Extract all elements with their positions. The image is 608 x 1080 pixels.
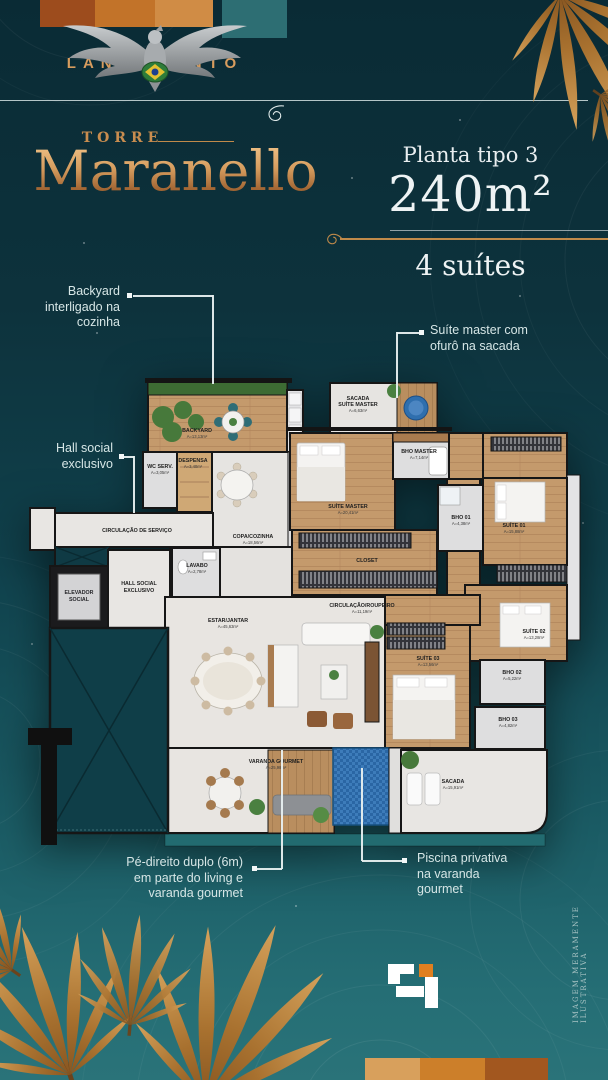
- eagle-logo-icon: [55, 6, 255, 106]
- svg-text:A=7,14m²: A=7,14m²: [410, 455, 429, 460]
- room-label-elevador: ELEVADOR: [64, 590, 93, 596]
- svg-text:A=45,63m²: A=45,63m²: [218, 624, 239, 629]
- callout-connector: [362, 860, 402, 862]
- svg-text:A=13,56m²: A=13,56m²: [418, 662, 439, 667]
- room-label-circ-servico: CIRCULAÇÃO DE SERVIÇO: [102, 527, 172, 534]
- callout-connector: [133, 295, 213, 297]
- svg-text:A=11,19m²: A=11,19m²: [352, 609, 373, 614]
- callout-bullet: [419, 330, 424, 335]
- svg-text:A=3,40m²: A=3,40m²: [184, 464, 203, 469]
- callout-bullet: [252, 866, 257, 871]
- room-label-circ-roupeiro: CIRCULAÇÃO/ROUPEIRO: [329, 602, 394, 609]
- svg-text:EXCLUSIVO: EXCLUSIVO: [124, 588, 155, 594]
- svg-text:A=15,91m²: A=15,91m²: [443, 785, 464, 790]
- callout-connector: [257, 868, 282, 870]
- spiral-flourish-icon: [266, 104, 286, 122]
- builder-logo-icon: [388, 962, 448, 1010]
- area-divider-thin: [390, 230, 608, 231]
- svg-text:A=18,56m²: A=18,56m²: [243, 540, 264, 545]
- callout-pe-direito: Pé-direito duplo (6m) em parte do living…: [95, 855, 243, 902]
- svg-text:A=4,38m²: A=4,38m²: [452, 521, 471, 526]
- callout-connector: [397, 332, 419, 334]
- svg-text:A=25,98m²: A=25,98m²: [266, 765, 287, 770]
- svg-text:A=13,28m²: A=13,28m²: [524, 635, 545, 640]
- plan-type-label: Planta tipo 3: [333, 143, 608, 167]
- svg-text:A=13,13m²: A=13,13m²: [187, 434, 208, 439]
- callout-backyard: Backyard interligado na cozinha: [24, 284, 120, 331]
- bottom-bar-orange: [420, 1058, 485, 1080]
- callout-piscina: Piscina privativa na varanda gourmet: [417, 851, 529, 898]
- room-label-suite-03: SUÍTE 03: [417, 654, 440, 662]
- svg-text:A=20,41m²: A=20,41m²: [338, 510, 359, 515]
- callout-hall-social: Hall social exclusivo: [29, 441, 113, 472]
- svg-text:A=6,63m²: A=6,63m²: [349, 408, 368, 413]
- callout-bullet: [402, 858, 407, 863]
- svg-text:A=2,78m²: A=2,78m²: [188, 569, 207, 574]
- svg-text:SOCIAL: SOCIAL: [69, 597, 90, 603]
- plan-area-label: 240m²: [333, 166, 608, 223]
- callout-connector: [133, 456, 135, 513]
- room-label-suite-02: SUÍTE 02: [523, 627, 546, 635]
- svg-text:SUÍTE MASTER: SUÍTE MASTER: [338, 400, 378, 408]
- flyer-page: LANÇAMENTO TORRE Maranello Planta tipo 3…: [0, 0, 608, 1080]
- tower-name: Maranello: [18, 144, 333, 199]
- disclaimer-text: IMAGEM MERAMENTE ILUSTRATIVA: [572, 878, 588, 1023]
- callout-suite-master: Suíte master com ofurô na sacada: [430, 323, 562, 354]
- room-label-closet: CLOSET: [356, 558, 378, 564]
- callout-connector: [212, 295, 214, 384]
- callout-bullet: [119, 454, 124, 459]
- callout-connector: [281, 750, 283, 869]
- callout-bullet: [127, 293, 132, 298]
- callout-connector: [396, 332, 398, 398]
- area-divider-gold: [340, 238, 608, 240]
- bottom-bar-light-orange: [365, 1058, 420, 1080]
- svg-text:A=3,05m²: A=3,05m²: [151, 470, 170, 475]
- svg-text:A=4,82m²: A=4,82m²: [499, 723, 518, 728]
- spiral-flourish-gold-icon: [326, 232, 344, 248]
- svg-text:A=5,22m²: A=5,22m²: [503, 676, 522, 681]
- plan-suites-label: 4 suítes: [333, 249, 608, 282]
- room-label-suite-01: SUÍTE 01: [503, 521, 526, 529]
- room-label-hall-social: HALL SOCIAL: [121, 581, 157, 587]
- callout-connector: [361, 768, 363, 861]
- room-label-suite-master: SUÍTE MASTER: [328, 502, 368, 510]
- bottom-bar-dark-orange: [485, 1058, 548, 1080]
- svg-text:A=15,88m²: A=15,88m²: [504, 529, 525, 534]
